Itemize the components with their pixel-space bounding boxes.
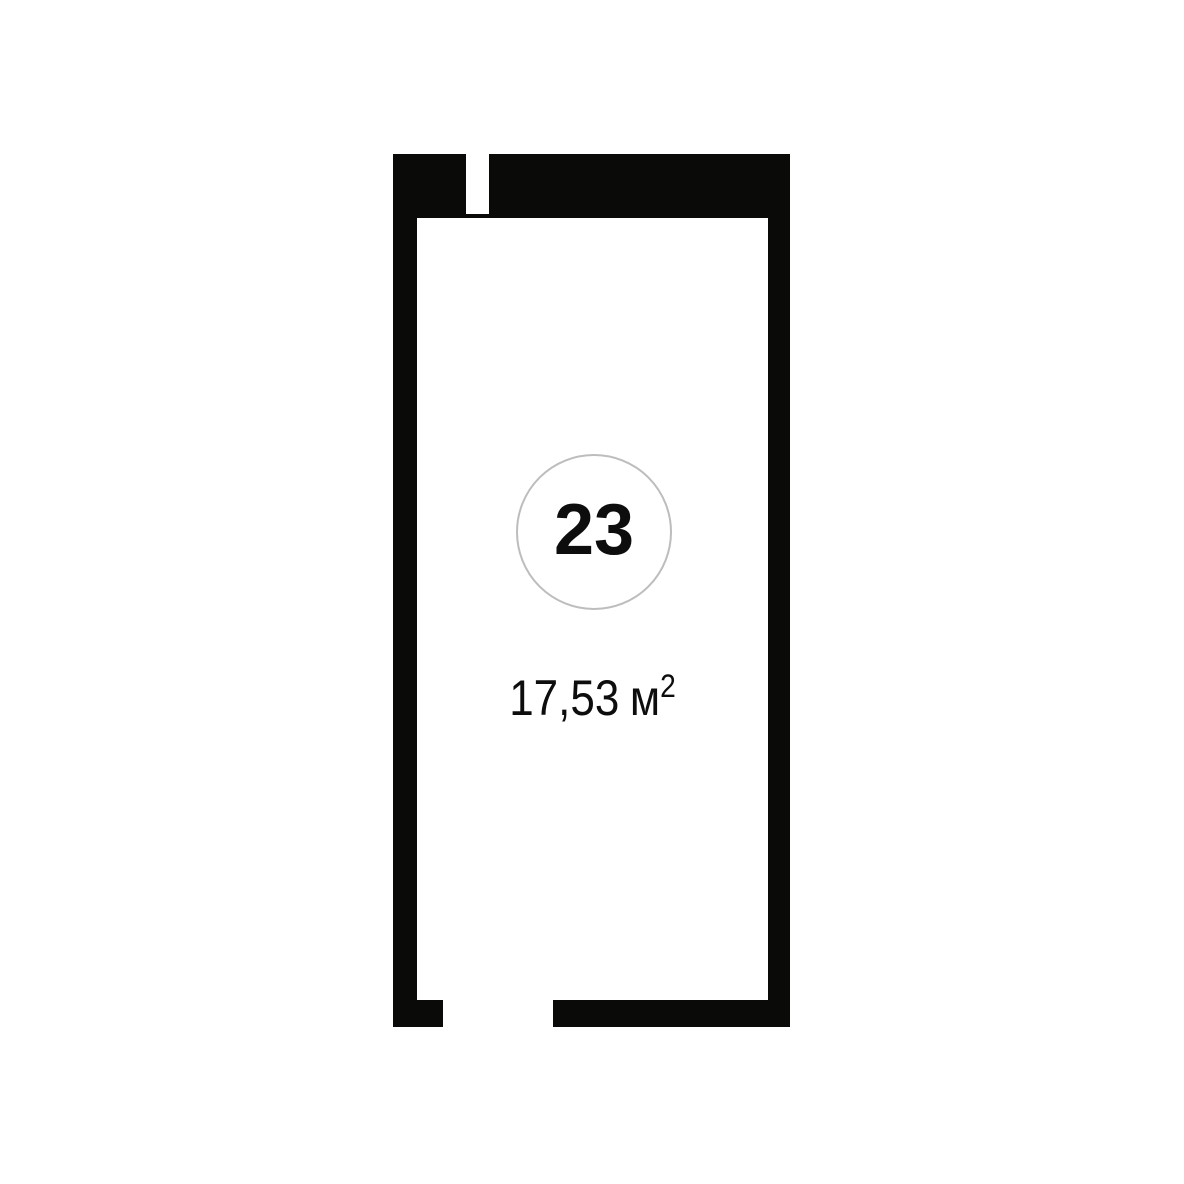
window-opening [466, 154, 489, 214]
room-number: 23 [554, 494, 634, 570]
area-value: 17,53 [509, 670, 619, 726]
wall-bottom-right [553, 1000, 790, 1027]
room-number-badge[interactable]: 23 [516, 454, 672, 610]
wall-right [768, 154, 790, 1027]
area-exponent: 2 [660, 668, 676, 704]
wall-bottom-left-stub [393, 1000, 443, 1027]
wall-left [393, 154, 417, 1027]
wall-top [393, 154, 790, 218]
floor-plan: 23 17,53м2 [0, 0, 1184, 1184]
room-area-label: 17,53м2 [438, 672, 747, 724]
area-unit: м [630, 670, 660, 726]
